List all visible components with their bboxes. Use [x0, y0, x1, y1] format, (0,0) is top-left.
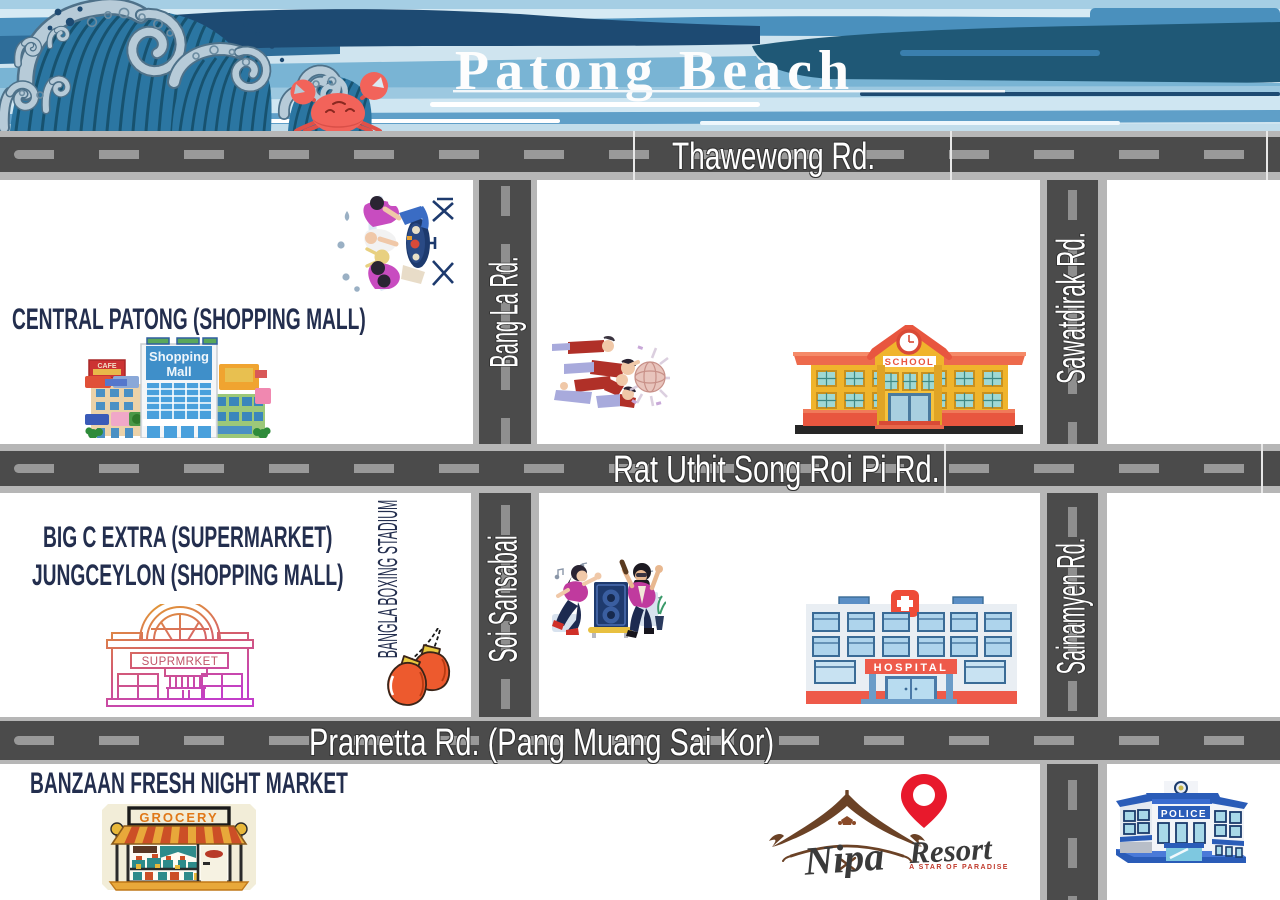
svg-text:SCHOOL: SCHOOL [885, 357, 935, 368]
svg-text:SUPRMRKET: SUPRMRKET [142, 656, 219, 668]
svg-text:GROCERY: GROCERY [139, 810, 218, 825]
svg-text:POLICE: POLICE [1161, 809, 1207, 820]
svg-text:Patong Beach: Patong Beach [455, 40, 855, 102]
svg-text:HOSPITAL: HOSPITAL [874, 662, 949, 674]
svg-text:CAFE: CAFE [97, 363, 116, 370]
svg-text:A STAR OF PARADISE: A STAR OF PARADISE [909, 864, 1009, 871]
svg-text:Mall: Mall [166, 364, 191, 379]
svg-text:Nipa: Nipa [802, 833, 886, 878]
svg-text:Shopping: Shopping [149, 349, 209, 364]
